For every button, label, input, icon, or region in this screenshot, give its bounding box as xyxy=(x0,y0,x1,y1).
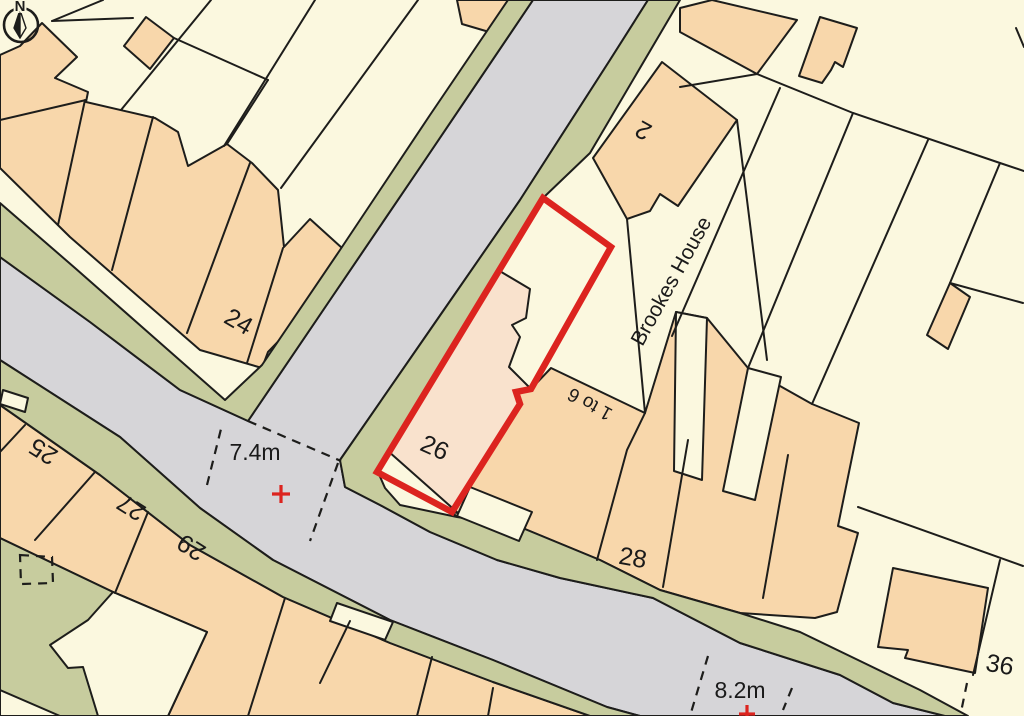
map-label-width-82: 8.2m xyxy=(714,677,765,703)
map-label-no-28: 28 xyxy=(617,542,649,574)
os-site-plan: 262425272921 to 62836Brookes House7.4m8.… xyxy=(0,0,1024,716)
building-bar-1 xyxy=(674,312,707,480)
map-canvas: 262425272921 to 62836Brookes House7.4m8.… xyxy=(0,0,1024,716)
map-label-no-36: 36 xyxy=(984,649,1016,681)
map-label-width-74: 7.4m xyxy=(229,439,280,465)
compass-letter: N xyxy=(15,0,26,15)
